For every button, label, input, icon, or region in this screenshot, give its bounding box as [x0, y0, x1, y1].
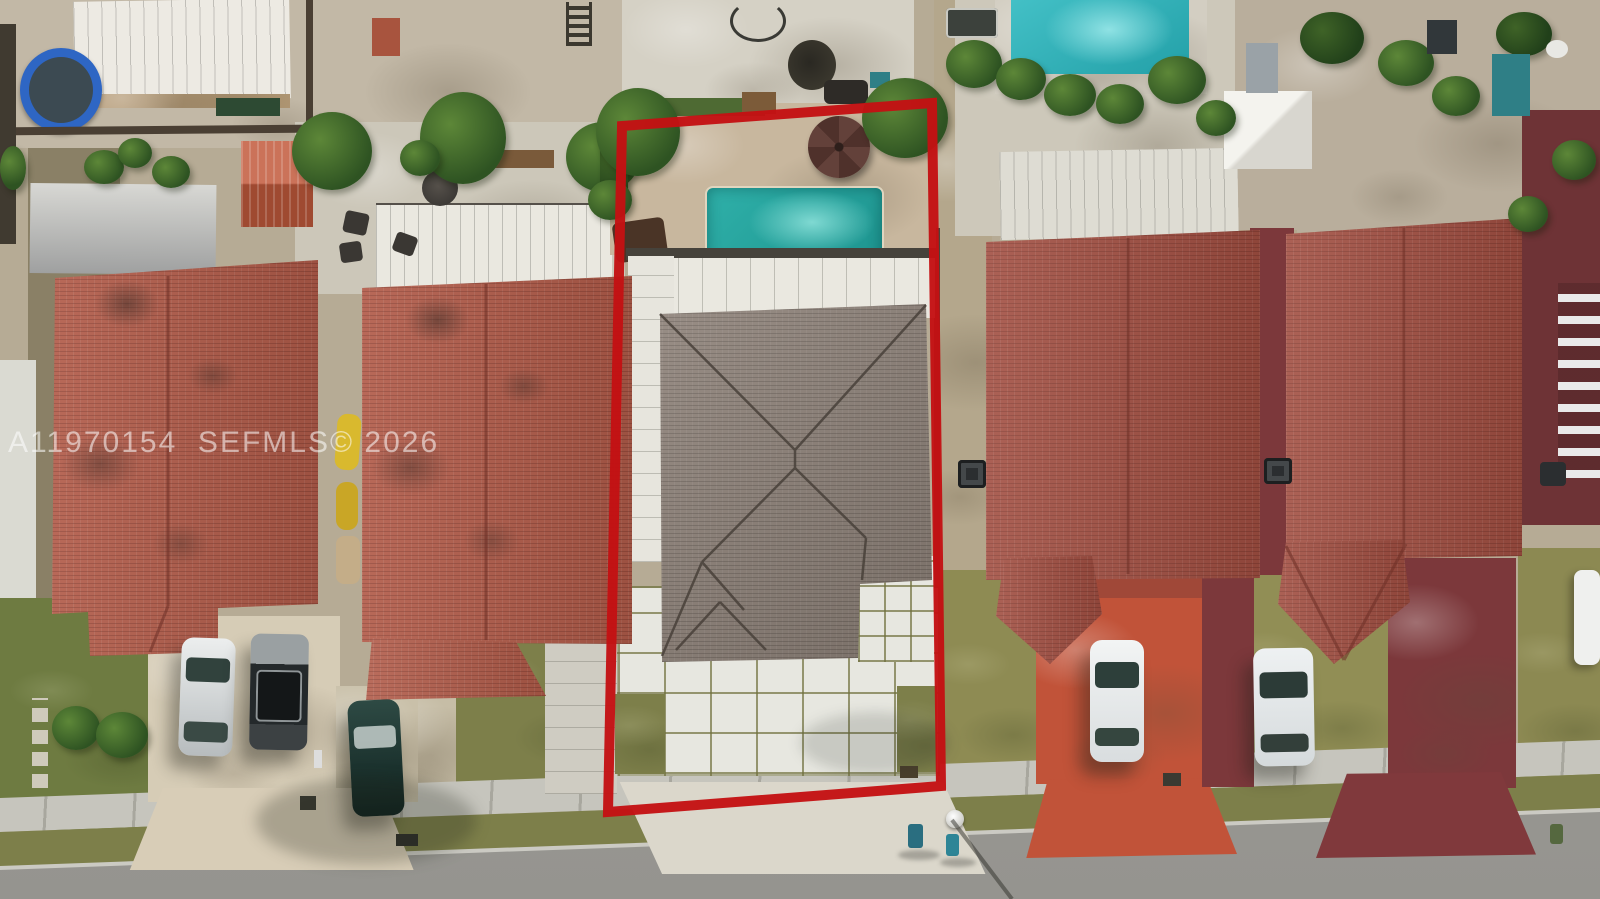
tree-top-right-1: [1300, 12, 1364, 64]
grill-equipment: [824, 80, 868, 104]
walkway-maroon-lower: [1202, 565, 1254, 787]
white-rv: [1574, 570, 1600, 665]
ladder: [566, 2, 592, 46]
yard-palm-2: [96, 712, 148, 758]
car-white-red-driveway: [1090, 640, 1144, 762]
ac-unit-house4: [1540, 462, 1566, 486]
house4-roof: [1286, 218, 1522, 560]
fence-far-left-edge: [0, 24, 16, 244]
ac-unit-house3-left: [958, 460, 986, 488]
car-white2-windshield: [1259, 672, 1307, 699]
bin-dark-top-right: [1427, 20, 1457, 54]
patio-chair-1: [342, 210, 370, 237]
tree-top-right-2: [1378, 40, 1434, 86]
patio-umbrella: [808, 116, 870, 178]
sun-loungers: [946, 8, 998, 38]
car-silver-rear-glass: [184, 721, 228, 742]
apron-subject: [612, 782, 997, 874]
car-teal-windshield: [354, 725, 397, 749]
palm-hedge-4: [1096, 84, 1144, 124]
tree-center-small: [400, 140, 440, 176]
car-silver: [178, 637, 236, 757]
palm-far-right: [1552, 140, 1596, 180]
mailbox-post: [314, 750, 322, 768]
bin-shadow-1: [898, 850, 940, 860]
tree-house4-corner: [1508, 196, 1548, 232]
ac-unit-house3-right: [1264, 458, 1292, 484]
car-white2-rear-glass: [1260, 734, 1308, 753]
palm-hedge-6: [1196, 100, 1236, 136]
tree-far-left: [0, 146, 26, 190]
panel-roof-house3-rear: [999, 148, 1238, 240]
tree-left-large: [292, 112, 372, 190]
mls-watermark: A11970154 SEFMLS© 2026: [8, 426, 439, 460]
bin-shadow-2: [940, 858, 976, 867]
garden-hose-coil: [730, 0, 786, 42]
aerial-photo: A11970154 SEFMLS© 2026: [0, 0, 1600, 899]
palm-hedge-1: [946, 40, 1002, 88]
stepping-stone-path: [32, 698, 48, 788]
suv-sunroof: [255, 670, 302, 723]
tree-top-right-4: [1496, 12, 1552, 56]
tan-boat: [336, 536, 360, 584]
tree-shadow-street: [256, 778, 476, 864]
palm-hedge-3: [1044, 74, 1096, 116]
teal-dumpster-top-right: [1492, 54, 1530, 116]
car-dark-suv: [249, 634, 309, 751]
palm-hedge-2: [996, 58, 1046, 100]
street-lamp-globe: [946, 810, 964, 828]
bush-row-2: [118, 138, 152, 168]
white-shed-right: [1224, 91, 1312, 169]
green-tarp-strip: [216, 98, 280, 116]
palm-subject-top-left: [596, 88, 680, 176]
apron-shadow-subject: [800, 712, 950, 774]
trash-bin-teal-2: [946, 834, 959, 856]
house3-roof: [986, 228, 1260, 580]
car-white1-windshield: [1095, 662, 1138, 688]
gray-shed-right: [1246, 43, 1278, 93]
palm-subject-top-left-2: [588, 180, 632, 220]
patio-chair-2: [339, 241, 364, 264]
lawn-inside-left: [615, 694, 665, 774]
satellite-dish: [1546, 40, 1568, 58]
yard-palm-1: [52, 706, 100, 750]
tree-top-right-3: [1432, 76, 1480, 116]
palm-subject-top-right: [862, 78, 948, 158]
white-metal-roof-top-left: [73, 0, 291, 102]
trash-bin-teal-1: [908, 824, 923, 848]
car-white-house4: [1253, 647, 1315, 766]
balcony-rail-strip: [1558, 283, 1600, 478]
bush-row-3: [152, 156, 190, 188]
trash-bin-green-right: [1550, 824, 1563, 844]
apron-house4-maroon: [1316, 772, 1536, 858]
trampoline: [20, 48, 102, 132]
yellow-kayak-2: [336, 482, 358, 530]
car-white1-rear-glass: [1095, 728, 1138, 746]
car-silver-windshield: [186, 657, 230, 682]
palm-hedge-5: [1148, 56, 1206, 104]
wood-storage-box: [742, 92, 776, 114]
small-red-shed-top: [372, 18, 400, 56]
apron-house3-red: [1022, 778, 1237, 858]
utility-plate-4: [1163, 773, 1181, 786]
silver-metal-shed: [30, 183, 217, 275]
fence-vertical-left: [306, 0, 313, 132]
house2-roof: [362, 276, 632, 644]
